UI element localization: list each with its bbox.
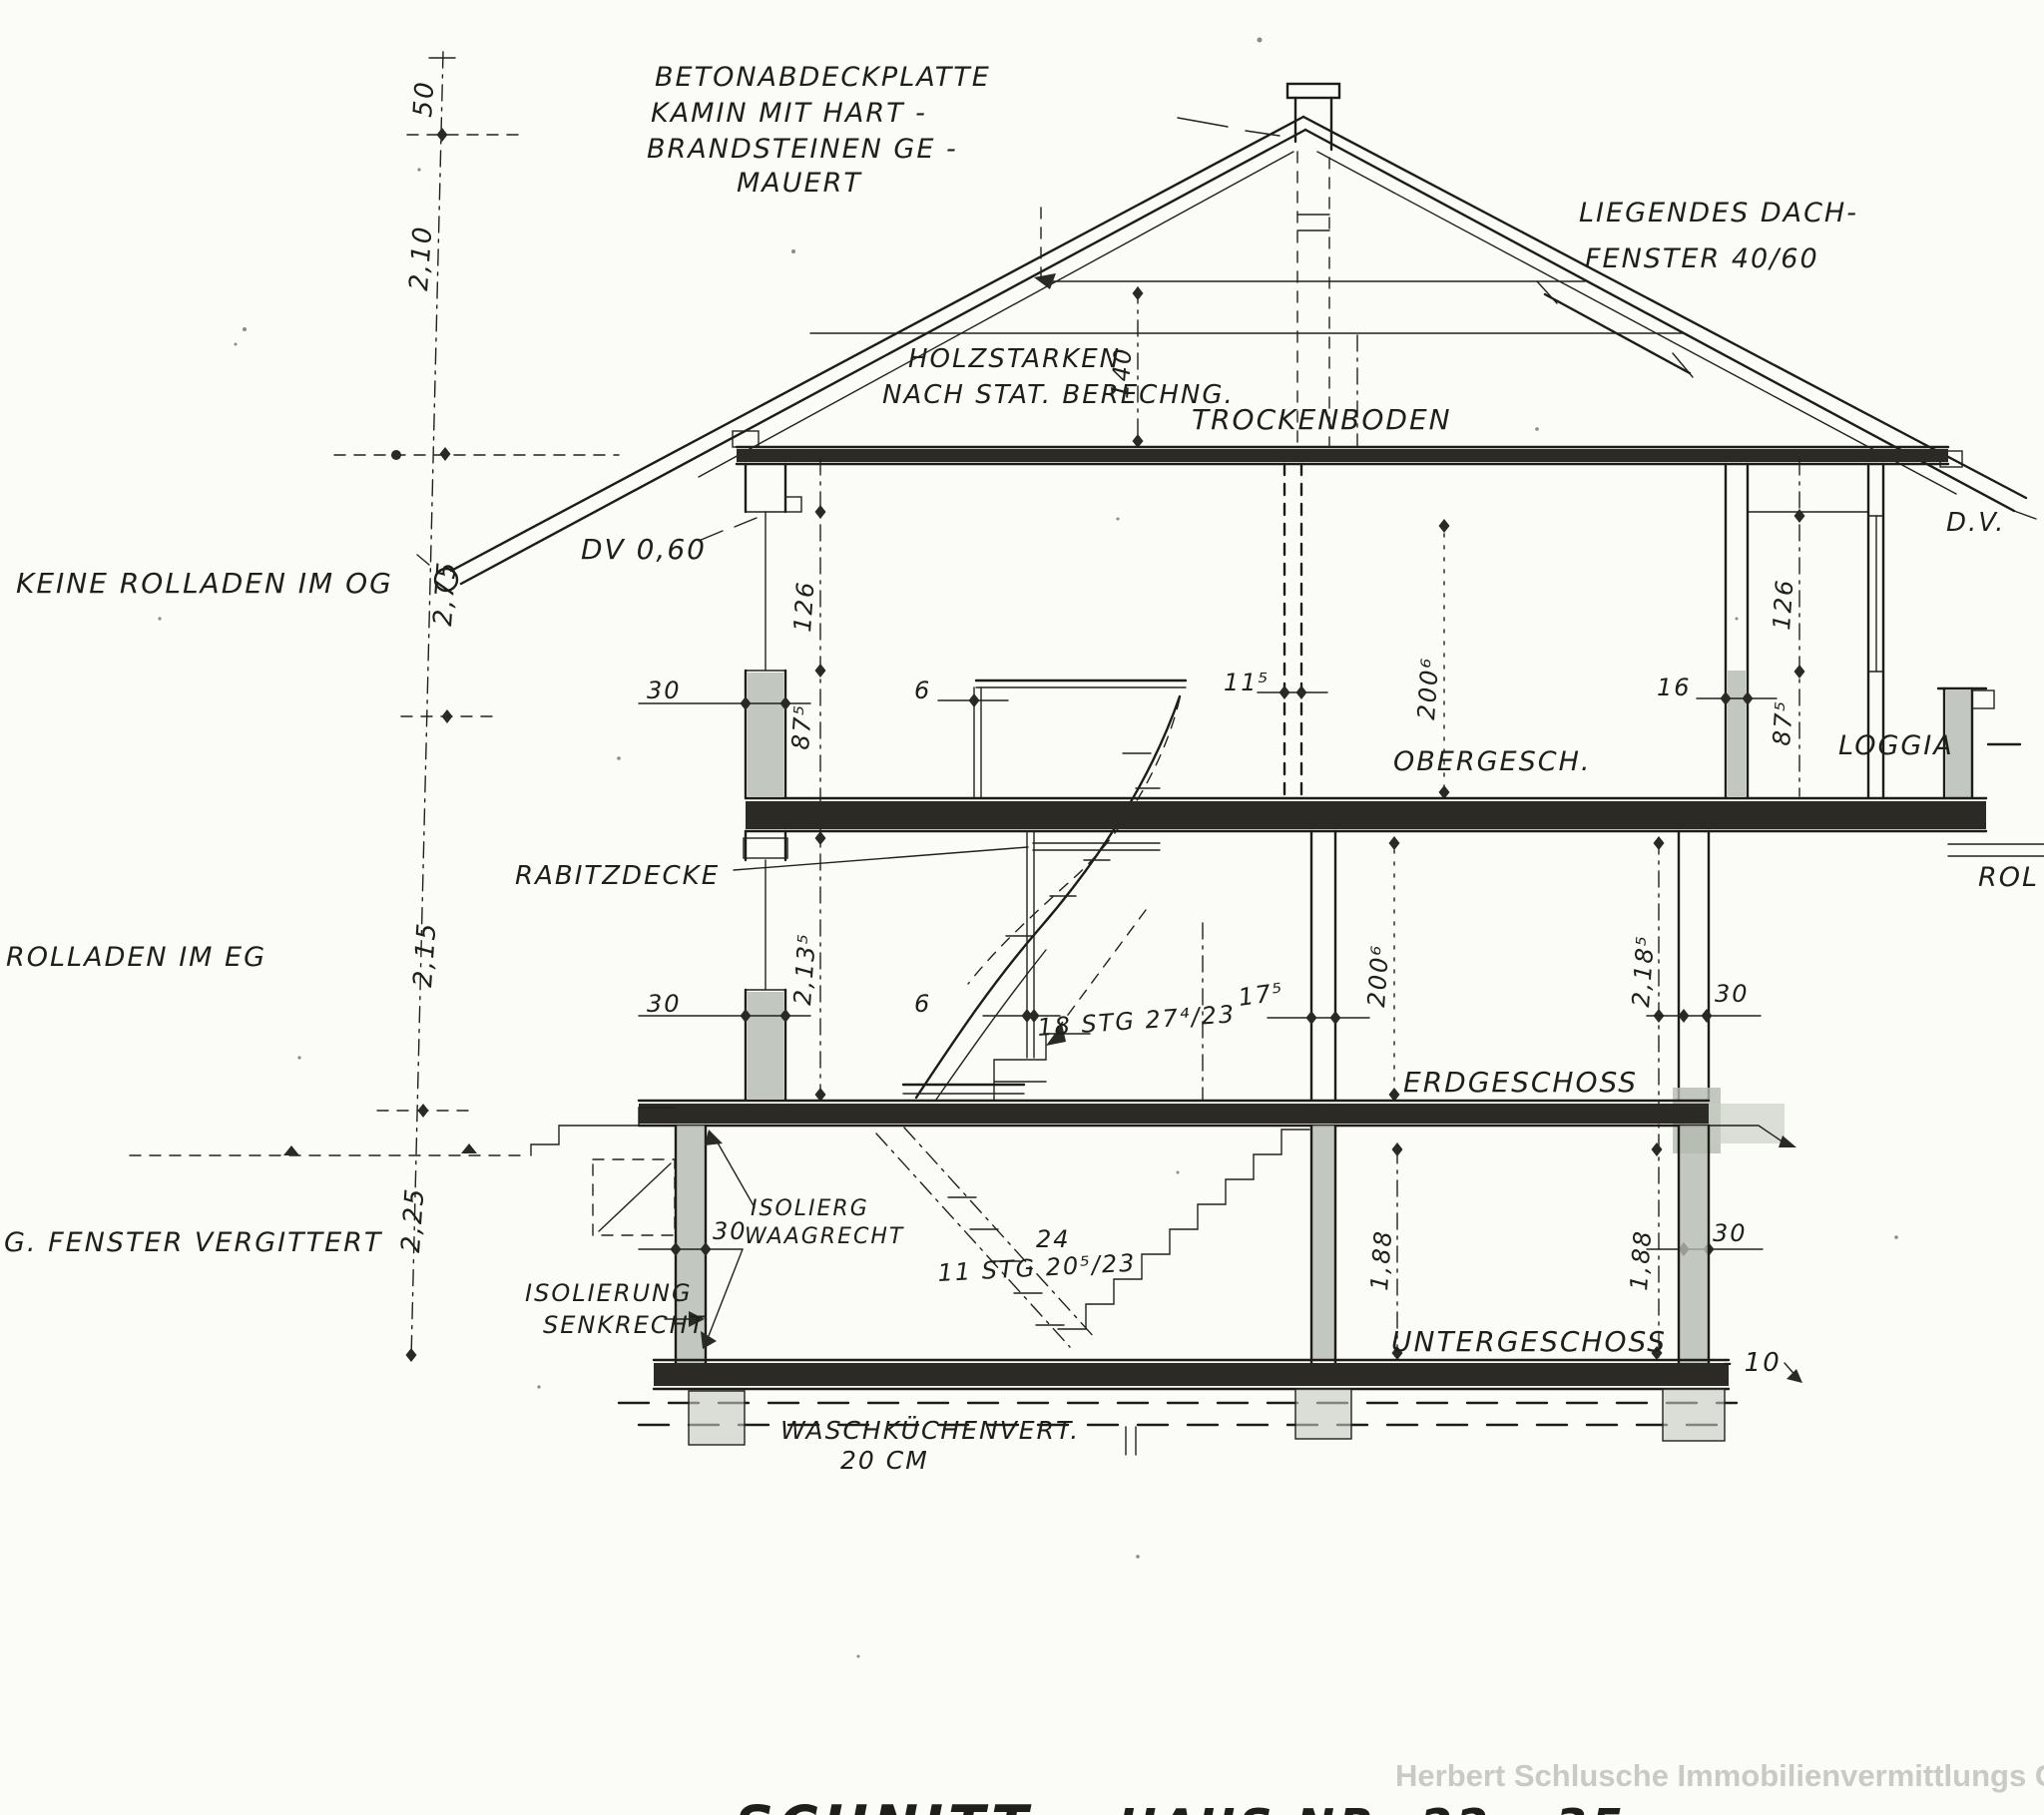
label-insul-horiz-1: ISOLIERG	[751, 1196, 869, 1221]
insulation-arrow-1	[715, 1137, 755, 1207]
loggia-handrail	[1972, 690, 1994, 708]
scanned-section-drawing-page: BETONABDECKPLATTE KAMIN MIT HART - BRAND…	[0, 0, 2044, 1815]
labels: BETONABDECKPLATTE KAMIN MIT HART - BRAND…	[4, 62, 2044, 1815]
chimney-cap-plate	[1287, 84, 1339, 98]
label-stairs-ug-count: 24	[1036, 1225, 1071, 1253]
dim-eg-mid-wall: 17⁵	[1237, 978, 1286, 1012]
label-attic: TROCKENBODEN	[1192, 403, 1452, 436]
dim-ug-h-right: 1,88	[1625, 1228, 1657, 1291]
roof-outline	[417, 117, 2036, 591]
og-inner-wall-11	[1258, 464, 1327, 798]
dim-og-lintel-h: 200⁶	[1412, 656, 1444, 720]
chain-dim-ug: 2,25	[396, 1186, 431, 1254]
og-floor-slab	[734, 798, 1986, 870]
ug-left-wall	[639, 1126, 755, 1377]
label-eg: ERDGESCHOSS	[1403, 1066, 1638, 1099]
label-stairs-ug: 11 STG 20⁵/23	[937, 1249, 1137, 1287]
dim-collar-height: 140	[1106, 346, 1138, 400]
dim-og-parapet-h: 87⁵	[786, 702, 817, 750]
label-insul-vert-1: ISOLIERUNG	[525, 1279, 693, 1307]
house-number-title: HAUS NR. 22 - 35	[1118, 1799, 1627, 1815]
eg-right-wall	[1647, 831, 1785, 1357]
label-insul-horiz-2: WAAGRECHT	[745, 1224, 904, 1249]
label-rabitz: RABITZDECKE	[515, 861, 720, 891]
dim-eg-wall-left: 30	[647, 990, 682, 1018]
chain-dim-eg: 2,15	[408, 921, 443, 989]
dim-eg-room-h-r: 2,18⁵	[1627, 934, 1660, 1009]
label-roof-window-2: FENSTER 40/60	[1585, 243, 1819, 274]
dim-ug-wall-right: 30	[1713, 1219, 1748, 1247]
label-stairs-eg: 18 STG 27⁴/23	[1036, 1000, 1237, 1042]
chain-dim-roof: 2,10	[404, 225, 439, 292]
drawing-type-title: SCHNITT	[735, 1794, 1033, 1815]
dim-og-window-h: 126	[788, 580, 820, 634]
label-chimney-note-2: KAMIN MIT HART -	[651, 98, 927, 129]
eg-mid-wall-17	[1203, 831, 1369, 1101]
label-ug: UNTERGESCHOSS	[1391, 1325, 1667, 1358]
label-og: OBERGESCH.	[1393, 746, 1591, 777]
watermark: Herbert Schlusche Immobilienvermittlungs…	[1395, 1758, 2044, 1793]
dim-ug-level: - 10	[1723, 1348, 1782, 1378]
label-chimney-note-3: BRANDSTEINEN GE -	[647, 134, 958, 165]
attic-floor-slab	[737, 447, 1948, 464]
label-dv-left: DV 0,60	[581, 533, 707, 566]
chain-dim-og: 2,75	[428, 560, 463, 628]
dim-og-partition: 6	[914, 677, 931, 704]
eg-floor-slab	[639, 1101, 1796, 1147]
ug-mid-pier	[1311, 1126, 1335, 1377]
eg-rolladen-box	[744, 838, 787, 858]
ug-right-wall	[1679, 1126, 1709, 1377]
label-insul-vert-2: SENKRECHT	[543, 1311, 707, 1339]
label-laundry-2: 20 CM	[840, 1446, 929, 1475]
house-cross-section: BETONABDECKPLATTE KAMIN MIT HART - BRAND…	[0, 0, 2044, 1815]
label-shutters-eg: ROLLADEN IM EG	[6, 942, 266, 973]
eg-rolladen-right	[1948, 844, 2044, 856]
dim-eg-wall-right: 30	[1715, 980, 1750, 1008]
dim-ug-wall-left: 30	[713, 1217, 748, 1245]
label-barred-windows: G. FENSTER VERGITTERT	[4, 1227, 383, 1258]
dv-leader	[699, 518, 757, 541]
basement-stairs	[876, 1128, 1309, 1347]
dim-eg-room-h: 2,13⁵	[788, 932, 821, 1007]
dimension-chain-left	[334, 52, 619, 1362]
label-chimney-note-1: BETONABDECKPLATTE	[655, 62, 991, 93]
label-no-shutters-og: KEINE ROLLADEN IM OG	[16, 567, 393, 600]
dim-og-wall-16: 16	[1657, 674, 1692, 701]
dim-eg-lintel-h: 200⁶	[1362, 943, 1394, 1008]
dim-og-window-h-r: 126	[1768, 578, 1799, 632]
chain-dim-50: 50	[408, 79, 441, 118]
label-dv-right: D.V.	[1946, 508, 2005, 538]
dim-og-parapet-h-r: 87⁵	[1768, 698, 1798, 746]
dim-ug-h-left: 1,88	[1365, 1228, 1397, 1291]
label-laundry-1: WASCHKÜCHENVERT.	[780, 1416, 1080, 1445]
label-loggia: LOGGIA	[1838, 730, 1954, 761]
label-rol: ROL	[1978, 862, 2039, 893]
eave-foot-left	[733, 431, 759, 447]
dim-og-wall-left: 30	[647, 677, 682, 704]
dim-eg-partition: 6	[914, 990, 931, 1018]
note-leader	[1178, 118, 1228, 127]
label-timber-1: HOLZSTARKEN	[908, 344, 1121, 374]
dim-og-inner-wall: 11⁵	[1224, 669, 1270, 696]
insulation-arrow-2	[707, 1249, 743, 1341]
label-roof-window-1: LIEGENDES DACH-	[1579, 198, 1858, 228]
label-chimney-note-4: MAUERT	[737, 168, 862, 199]
label-timber-2: NACH STAT. BERECHNG.	[882, 380, 1235, 410]
